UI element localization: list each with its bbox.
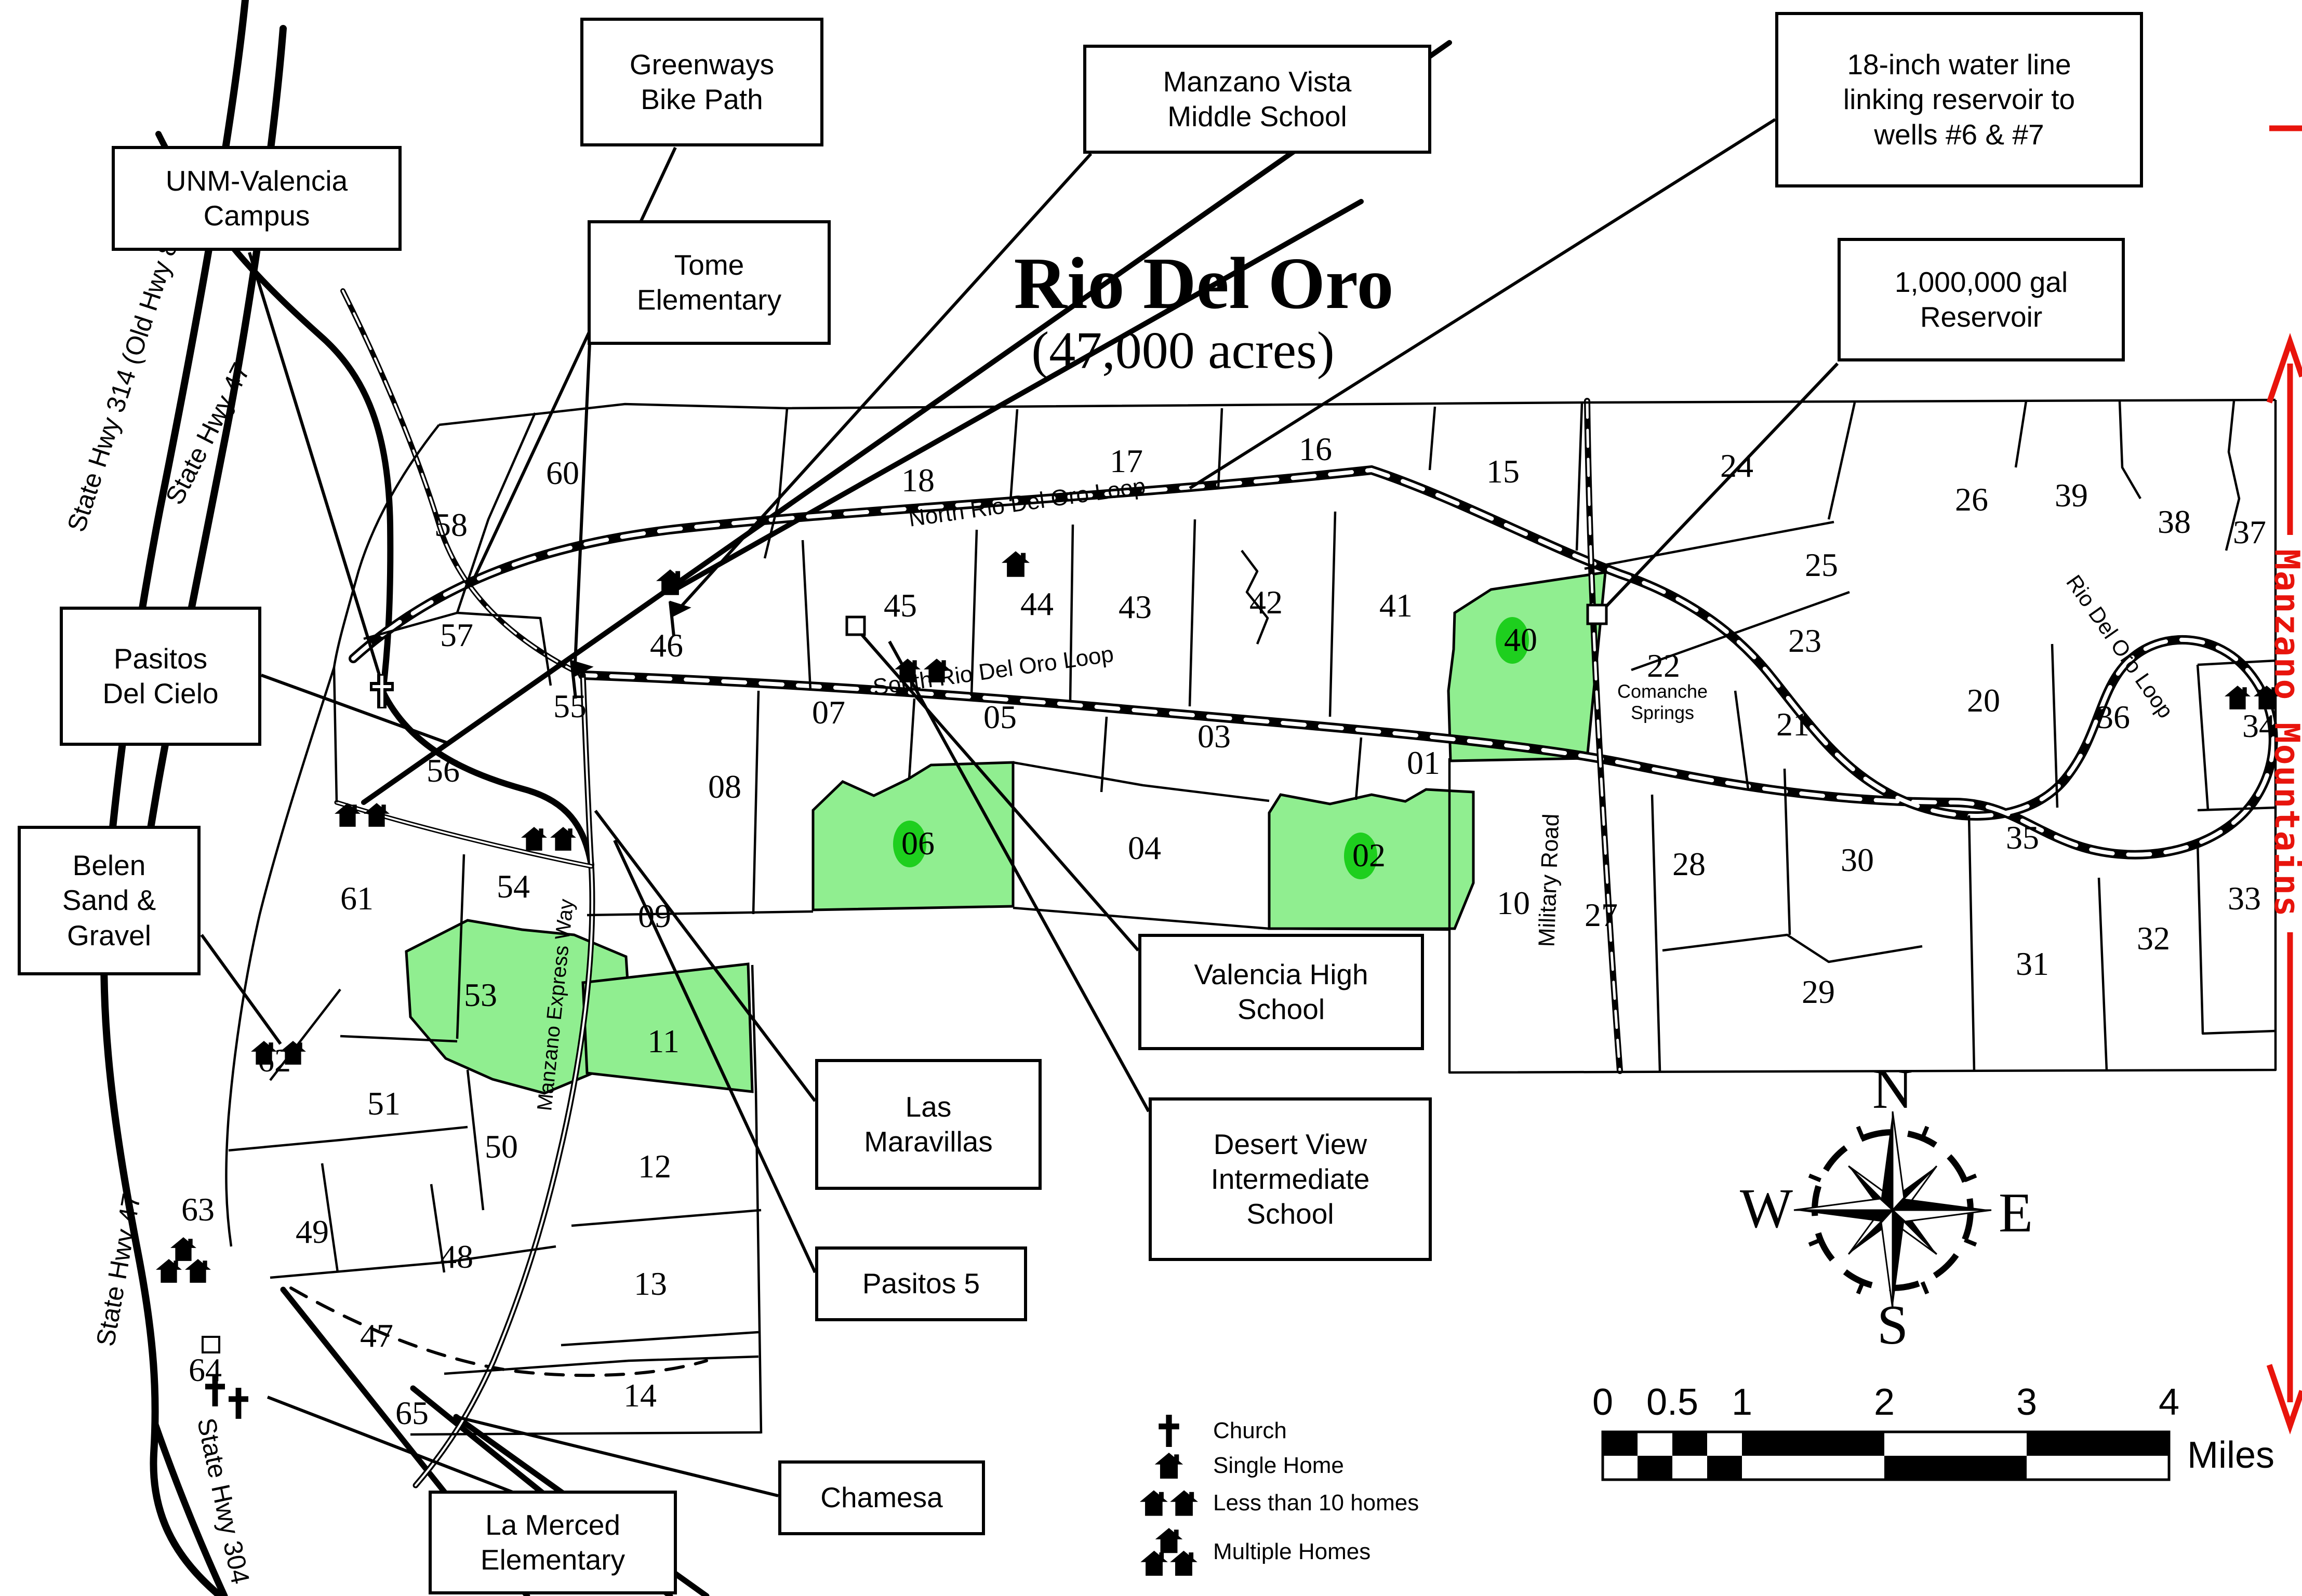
- parcel-number-text: 32: [2137, 920, 2170, 957]
- parcel-number-09: 09: [638, 900, 671, 933]
- parcel-number-text: 25: [1805, 546, 1838, 583]
- callout-line: 1,000,000 gal: [1895, 265, 2068, 300]
- legend-row-home-2: Less than 10 homes: [1125, 1490, 1419, 1516]
- parcel-number-text: 27: [1585, 896, 1618, 933]
- parcel-number-text: 38: [2158, 503, 2191, 540]
- legend-row-church: Church: [1125, 1415, 1287, 1447]
- parcel-number-12: 12: [638, 1150, 671, 1183]
- parcel-number-60: 60: [546, 457, 579, 490]
- parcel-number-29: 29: [1802, 975, 1835, 1009]
- callout-line: 18-inch water line: [1847, 47, 2071, 82]
- parcel-number-62: 62: [258, 1044, 291, 1077]
- callout-line: Sand &: [62, 883, 156, 918]
- callout-line: Maravillas: [864, 1124, 993, 1159]
- parcel-number-text: 31: [2016, 945, 2049, 982]
- callout-tome-elementary: TomeElementary: [588, 220, 831, 345]
- parcel-number-text: 34: [2242, 707, 2276, 744]
- legend-row-home-3: Multiple Homes: [1125, 1528, 1370, 1576]
- parcel-number-49: 49: [296, 1215, 329, 1249]
- parcel-number-text: 63: [181, 1191, 215, 1228]
- road-label: South Rio Del Oro Loop: [871, 641, 1115, 701]
- callout-line: Desert View: [1214, 1127, 1367, 1162]
- parcel-number-text: 14: [623, 1377, 657, 1414]
- parcel-number-01: 01: [1407, 746, 1440, 780]
- parcel-number-text: 24: [1720, 447, 1753, 484]
- parcel-number-04: 04: [1128, 831, 1161, 865]
- parcel-number-26: 26: [1955, 483, 1988, 516]
- home-1-icon: [1125, 1453, 1213, 1479]
- parcel-number-text: 05: [983, 699, 1017, 735]
- parcel-number-20: 20: [1967, 684, 2000, 717]
- callout-line: linking reservoir to: [1843, 82, 2075, 117]
- scale-tick-3: 3: [2016, 1381, 2037, 1424]
- parcel-number-text: 47: [360, 1317, 393, 1354]
- parcel-number-text: 39: [2055, 477, 2088, 514]
- parcel-number-38: 38: [2158, 505, 2191, 539]
- callout-line: Manzano Vista: [1163, 64, 1352, 99]
- legend-label: Church: [1213, 1418, 1287, 1444]
- callout-line: Tome: [674, 248, 744, 283]
- parcel-number-25: 25: [1805, 548, 1838, 582]
- comanche-springs-label: ComancheSprings: [1617, 681, 1708, 724]
- parcel-number-text: 12: [638, 1148, 671, 1185]
- parcel-number-text: 30: [1841, 841, 1874, 878]
- home-2-icon: [1125, 1490, 1213, 1516]
- parcel-number-text: 61: [340, 880, 374, 917]
- scale-tick-4: 4: [2159, 1381, 2179, 1424]
- parcel-number-53: 53: [464, 978, 497, 1012]
- callout-desert-view-intermediate-school: Desert ViewIntermediateSchool: [1149, 1097, 1432, 1261]
- parcel-number-text: 01: [1407, 744, 1440, 781]
- callout-line: Elementary: [637, 283, 781, 317]
- parcel-number-text: 20: [1967, 682, 2000, 719]
- compass-N: N: [1872, 1057, 1913, 1122]
- parcel-number-text: 54: [497, 868, 530, 905]
- parcel-number-05: 05: [983, 701, 1017, 734]
- compass-E: E: [1999, 1181, 2033, 1245]
- parcel-number-text: 36: [2097, 699, 2130, 735]
- callout-unm-valencia-campus: UNM-ValenciaCampus: [112, 146, 402, 251]
- parcel-number-text: 64: [189, 1351, 222, 1388]
- parcel-number-28: 28: [1672, 848, 1706, 881]
- parcel-number-44: 44: [1020, 587, 1054, 621]
- parcel-number-07: 07: [812, 696, 845, 729]
- rio-del-oro-map: Rio Del Oro (47,000 acres) Manzano Mount…: [0, 0, 2302, 1596]
- parcel-number-14: 14: [623, 1379, 657, 1412]
- parcel-number-text: 33: [2228, 880, 2261, 917]
- road-label: State Hwy 304: [191, 1415, 256, 1587]
- callout-line: Belen: [73, 848, 146, 883]
- parcel-number-text: 11: [647, 1023, 680, 1059]
- compass-W: W: [1740, 1177, 1793, 1241]
- callout-line: Pasitos 5: [862, 1266, 980, 1301]
- parcel-number-34: 34: [2242, 709, 2276, 743]
- parcel-number-11: 11: [647, 1025, 680, 1058]
- parcel-number-41: 41: [1379, 589, 1413, 622]
- parcel-number-55: 55: [553, 690, 587, 723]
- parcel-number-35: 35: [2006, 821, 2039, 854]
- parcel-number-50: 50: [485, 1130, 518, 1163]
- home-3-icon: [1125, 1528, 1213, 1576]
- parcel-number-51: 51: [367, 1087, 401, 1120]
- road-label: State Hwy 47: [90, 1191, 147, 1349]
- callout-line: Reservoir: [1920, 300, 2042, 334]
- parcel-number-text: 42: [1249, 584, 1283, 621]
- parcel-number-64: 64: [189, 1353, 222, 1387]
- road-label: Manzano Express Way: [533, 898, 579, 1112]
- parcel-number-text: 22: [1647, 647, 1680, 684]
- parcel-number-43: 43: [1119, 591, 1152, 624]
- parcel-number-46: 46: [650, 629, 683, 662]
- parcel-number-06: 06: [901, 827, 935, 860]
- parcel-number-48: 48: [440, 1240, 473, 1273]
- parcel-number-61: 61: [340, 882, 374, 915]
- parcel-number-58: 58: [434, 508, 468, 542]
- map-title: Rio Del Oro: [1014, 240, 1394, 326]
- scale-tick-0: 0: [1592, 1381, 1613, 1424]
- parcel-number-33: 33: [2228, 882, 2261, 915]
- callout-chamesa: Chamesa: [778, 1460, 985, 1535]
- parcel-number-16: 16: [1299, 433, 1332, 466]
- parcel-number-23: 23: [1788, 624, 1821, 658]
- callout-greenways-bike-path: GreenwaysBike Path: [580, 18, 823, 146]
- callout-line: Greenways: [630, 47, 774, 82]
- parcel-number-08: 08: [708, 770, 741, 803]
- labels-layer: Rio Del Oro (47,000 acres) Manzano Mount…: [0, 0, 2302, 1596]
- road-label: Military Road: [1534, 813, 1565, 947]
- parcel-number-text: 09: [638, 897, 671, 934]
- road-label: North Rio Del Oro Loop: [907, 473, 1147, 532]
- scale-bar-unit: Miles: [2187, 1434, 2274, 1477]
- parcel-number-text: 40: [1504, 621, 1537, 658]
- parcel-number-text: 46: [650, 627, 683, 664]
- callout-las-maravillas: LasMaravillas: [815, 1059, 1042, 1190]
- church-icon: [1125, 1415, 1213, 1447]
- callout-line: La Merced: [485, 1508, 620, 1543]
- parcel-number-text: 60: [546, 454, 579, 491]
- parcel-number-text: 44: [1020, 585, 1054, 622]
- callout-line: Elementary: [481, 1543, 625, 1577]
- callout-line: School: [1246, 1197, 1334, 1231]
- callout-pasitos-5: Pasitos 5: [815, 1246, 1027, 1321]
- callout-water-line: 18-inch water linelinking reservoir towe…: [1775, 12, 2143, 187]
- parcel-number-22: 22: [1647, 649, 1680, 682]
- poi-label-line: Springs: [1617, 702, 1708, 723]
- callout-line: Campus: [204, 198, 310, 233]
- parcel-number-text: 03: [1197, 718, 1231, 755]
- parcel-number-57: 57: [440, 619, 473, 652]
- parcel-number-03: 03: [1197, 720, 1231, 753]
- parcel-number-text: 07: [812, 694, 845, 731]
- parcel-number-17: 17: [1110, 445, 1143, 478]
- parcel-number-56: 56: [427, 754, 460, 787]
- parcel-number-text: 06: [901, 825, 935, 862]
- map-subtitle: (47,000 acres): [1031, 320, 1334, 381]
- parcel-number-02: 02: [1352, 839, 1386, 872]
- parcel-number-text: 21: [1776, 706, 1809, 743]
- parcel-number-text: 48: [440, 1238, 473, 1275]
- parcel-number-27: 27: [1585, 898, 1618, 932]
- parcel-number-text: 53: [464, 976, 497, 1013]
- parcel-number-42: 42: [1249, 586, 1283, 619]
- callout-line: Del Cielo: [102, 676, 218, 711]
- road-label: State Hwy 47: [159, 358, 257, 509]
- parcel-number-text: 28: [1672, 846, 1706, 882]
- parcel-number-text: 58: [434, 506, 468, 543]
- parcel-number-text: 41: [1379, 587, 1413, 624]
- parcel-number-text: 04: [1128, 829, 1161, 866]
- callout-line: Valencia High: [1194, 957, 1368, 992]
- scale-tick-1: 1: [1732, 1381, 1752, 1424]
- callout-pasitos-del-cielo: PasitosDel Cielo: [60, 607, 261, 746]
- parcel-number-21: 21: [1776, 708, 1809, 741]
- compass-S: S: [1877, 1293, 1908, 1358]
- parcel-number-text: 50: [485, 1128, 518, 1165]
- parcel-number-text: 56: [427, 752, 460, 789]
- parcel-number-63: 63: [181, 1193, 215, 1226]
- poi-label-line: Comanche: [1617, 681, 1708, 702]
- parcel-number-text: 15: [1486, 453, 1520, 490]
- callout-line: wells #6 & #7: [1874, 117, 2044, 152]
- parcel-number-32: 32: [2137, 922, 2170, 955]
- parcel-number-text: 55: [553, 688, 587, 725]
- parcel-number-text: 65: [395, 1394, 429, 1431]
- callout-line: Las: [906, 1090, 952, 1124]
- parcel-number-54: 54: [497, 870, 530, 903]
- parcel-number-text: 37: [2233, 514, 2266, 551]
- parcel-number-36: 36: [2097, 701, 2130, 734]
- parcel-number-text: 18: [901, 462, 935, 499]
- legend-row-home-1: Single Home: [1125, 1453, 1344, 1479]
- parcel-number-text: 29: [1802, 973, 1835, 1010]
- legend-label: Less than 10 homes: [1213, 1490, 1419, 1516]
- callout-line: Middle School: [1167, 99, 1347, 134]
- parcel-number-37: 37: [2233, 516, 2266, 549]
- parcel-number-30: 30: [1841, 843, 1874, 877]
- parcel-number-text: 57: [440, 616, 473, 653]
- callout-la-merced-elementary: La MercedElementary: [429, 1491, 677, 1594]
- parcel-number-10: 10: [1497, 887, 1530, 920]
- scale-tick-2: 2: [1874, 1381, 1895, 1424]
- callout-reservoir: 1,000,000 galReservoir: [1838, 238, 2125, 361]
- callout-line: Gravel: [67, 918, 151, 953]
- parcel-number-text: 02: [1352, 837, 1386, 874]
- parcel-number-15: 15: [1486, 455, 1520, 488]
- parcel-number-18: 18: [901, 464, 935, 497]
- parcel-number-45: 45: [884, 589, 917, 622]
- parcel-number-text: 45: [884, 587, 917, 624]
- parcel-number-24: 24: [1720, 449, 1753, 482]
- parcel-number-text: 16: [1299, 431, 1332, 467]
- callout-belen-sand-gravel: BelenSand &Gravel: [18, 826, 201, 975]
- parcel-number-text: 43: [1119, 588, 1152, 625]
- callout-line: Chamesa: [820, 1480, 942, 1515]
- callout-line: Intermediate: [1211, 1162, 1370, 1197]
- legend-label: Multiple Homes: [1213, 1539, 1370, 1565]
- parcel-number-47: 47: [360, 1319, 393, 1352]
- parcel-number-text: 62: [258, 1042, 291, 1079]
- callout-line: Pasitos: [114, 641, 207, 676]
- parcel-number-65: 65: [395, 1397, 429, 1430]
- callout-line: Bike Path: [641, 82, 763, 117]
- legend-label: Single Home: [1213, 1453, 1344, 1479]
- parcel-number-39: 39: [2055, 479, 2088, 512]
- parcel-number-text: 35: [2006, 819, 2039, 856]
- callout-manzano-vista-middle-school: Manzano VistaMiddle School: [1083, 45, 1431, 154]
- parcel-number-text: 49: [296, 1213, 329, 1250]
- parcel-number-text: 10: [1497, 884, 1530, 921]
- parcel-number-text: 13: [634, 1265, 667, 1302]
- parcel-number-40: 40: [1504, 623, 1537, 656]
- parcel-number-text: 23: [1788, 622, 1821, 659]
- parcel-number-text: 51: [367, 1085, 401, 1122]
- parcel-number-13: 13: [634, 1267, 667, 1300]
- scale-tick-0.5: 0.5: [1646, 1381, 1698, 1424]
- callout-valencia-high-school: Valencia HighSchool: [1138, 934, 1424, 1050]
- parcel-number-text: 26: [1955, 481, 1988, 518]
- parcel-number-text: 08: [708, 768, 741, 805]
- callout-line: School: [1238, 992, 1325, 1027]
- parcel-number-31: 31: [2016, 947, 2049, 981]
- callout-line: UNM-Valencia: [166, 164, 348, 198]
